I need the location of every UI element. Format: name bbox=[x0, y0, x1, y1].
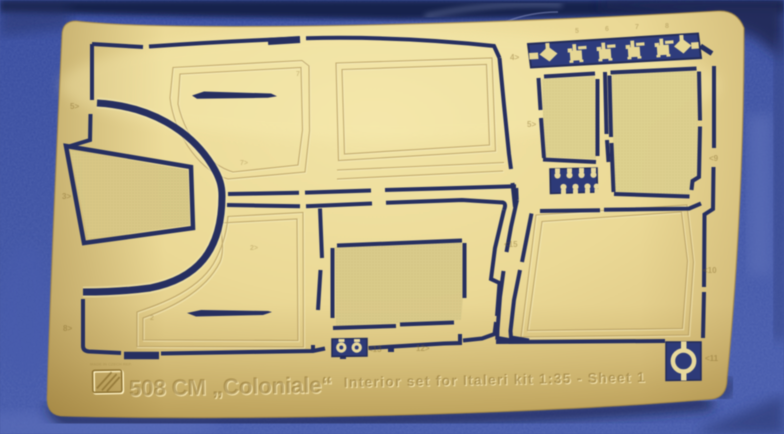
svg-text:2: 2 bbox=[150, 315, 154, 322]
svg-text:508 CM „Coloniale“: 508 CM „Coloniale“ bbox=[129, 372, 333, 401]
svg-text:<9: <9 bbox=[709, 154, 719, 163]
svg-text:3>: 3> bbox=[62, 192, 71, 201]
svg-text:6: 6 bbox=[605, 26, 609, 33]
svg-text:12>: 12> bbox=[416, 344, 430, 353]
svg-text:5: 5 bbox=[575, 28, 579, 35]
svg-text:7: 7 bbox=[296, 71, 300, 78]
svg-text:8>: 8> bbox=[63, 324, 72, 333]
svg-text:<10: <10 bbox=[703, 266, 717, 275]
svg-text:4>: 4> bbox=[510, 53, 519, 62]
svg-text:7>: 7> bbox=[240, 160, 248, 167]
svg-text:MADE IN CZECH REP.: MADE IN CZECH REP. bbox=[90, 362, 132, 367]
svg-text:5>: 5> bbox=[527, 120, 536, 129]
svg-text:<11: <11 bbox=[705, 354, 719, 363]
svg-text:7: 7 bbox=[635, 24, 639, 31]
svg-text:2>: 2> bbox=[250, 245, 258, 252]
svg-text:<15: <15 bbox=[504, 240, 518, 249]
svg-text:5>: 5> bbox=[70, 102, 79, 111]
svg-text:8: 8 bbox=[665, 23, 669, 30]
svg-text:<13: <13 bbox=[368, 345, 382, 354]
